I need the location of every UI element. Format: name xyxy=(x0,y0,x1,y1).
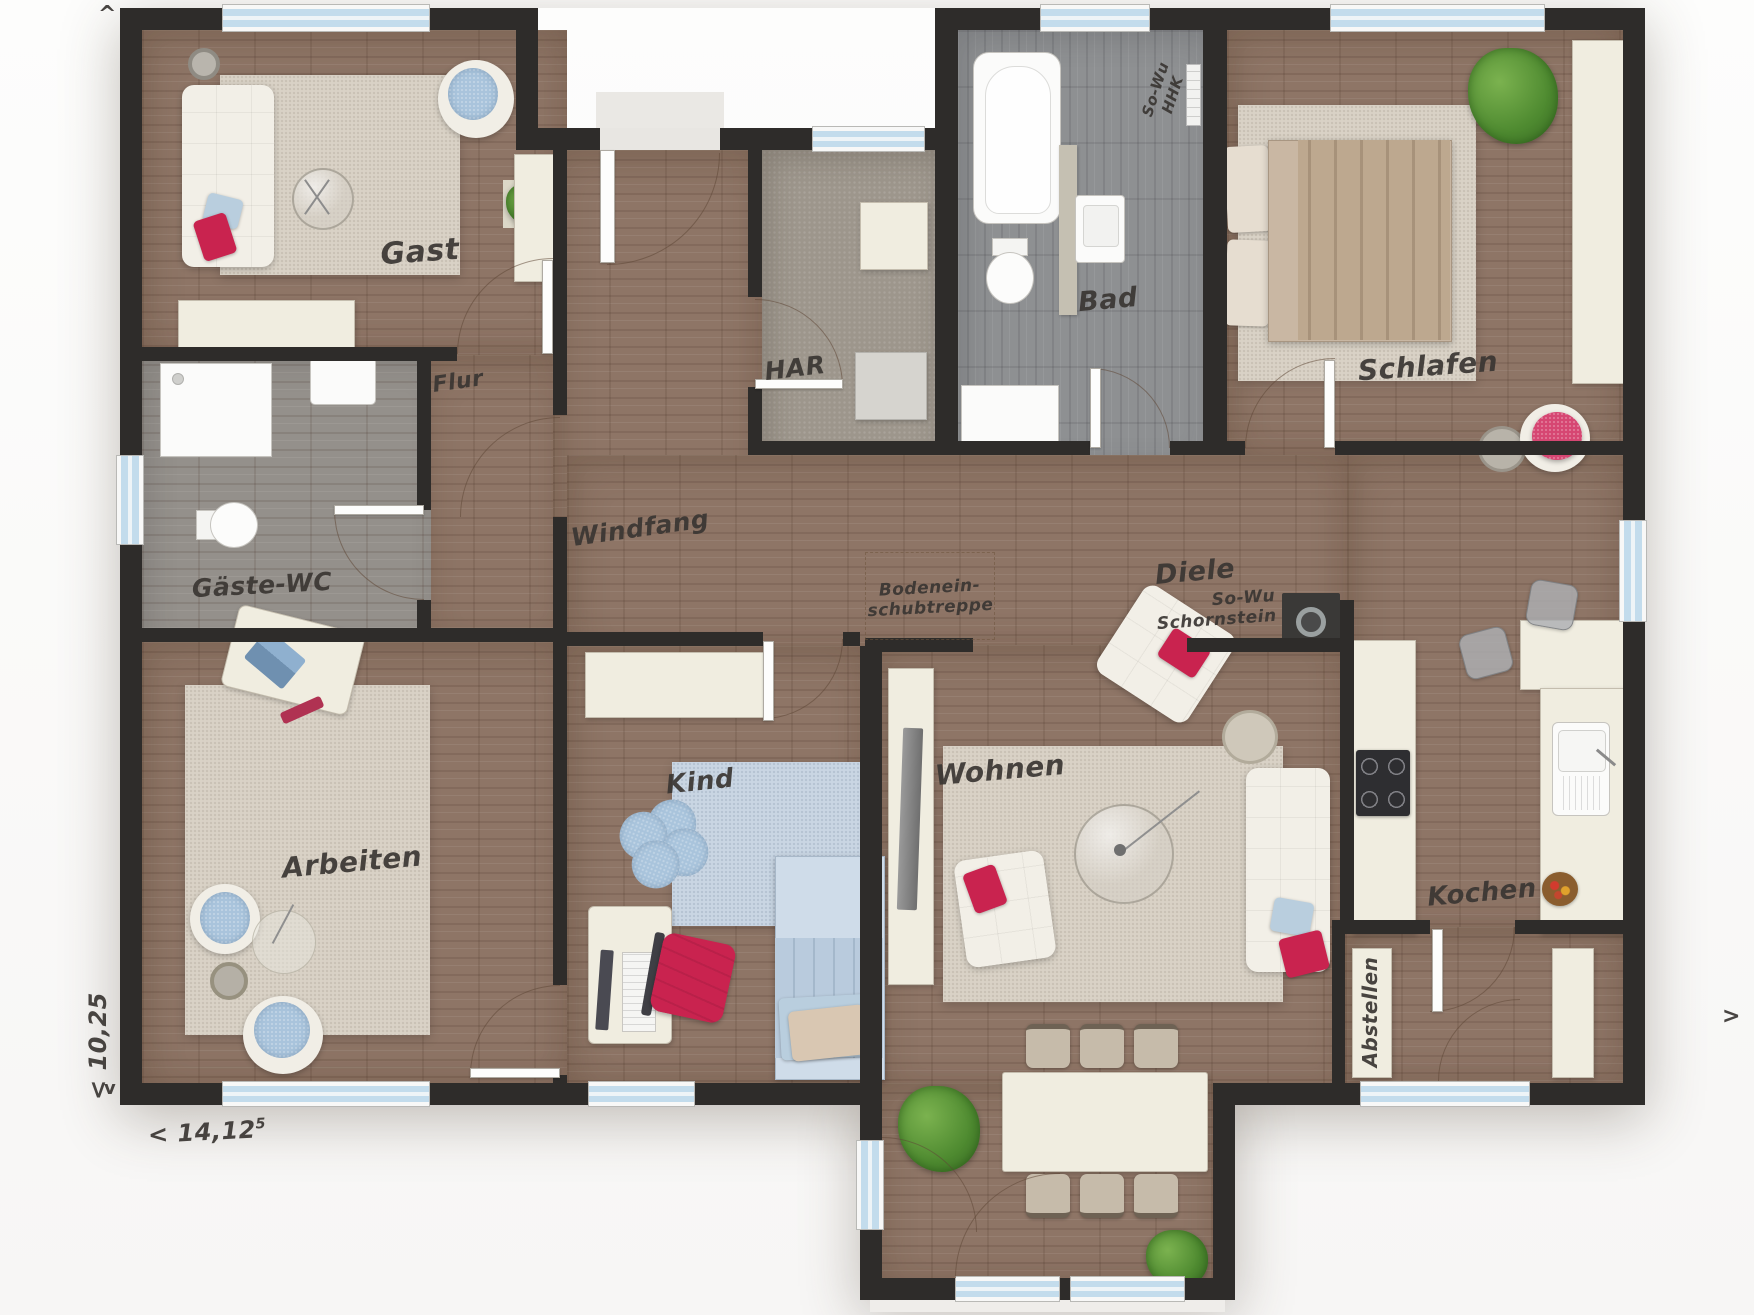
dining-chair-1 xyxy=(1026,1024,1070,1068)
schlafen-wardrobe xyxy=(1572,40,1625,384)
schlafen-blanket xyxy=(1298,140,1450,340)
wall xyxy=(1515,920,1623,934)
wall xyxy=(860,646,882,1083)
arbeiten-armchair-1-cushion xyxy=(200,892,250,944)
entry-landing xyxy=(596,92,724,132)
dimension-arrow-right: > xyxy=(1722,1004,1741,1029)
kochen-bar-counter xyxy=(1520,620,1625,690)
kochen-bar-chair-2 xyxy=(1524,578,1579,632)
wall xyxy=(417,355,431,510)
diele-side-table xyxy=(1222,710,1278,764)
gwc-door-leaf xyxy=(334,505,424,515)
window xyxy=(588,1081,695,1107)
room-label-gast: Gast xyxy=(379,232,460,272)
kind-wardrobe xyxy=(585,652,769,718)
wall xyxy=(1187,638,1340,652)
arbeiten-armchair-2-cushion xyxy=(254,1002,310,1058)
gwc-sink xyxy=(310,357,376,405)
dining-chair-5 xyxy=(1080,1174,1124,1218)
har-appliance-2 xyxy=(855,352,927,420)
gast-door-leaf xyxy=(542,260,553,354)
gast-coffee-table xyxy=(292,168,354,230)
window xyxy=(1040,4,1150,32)
wall xyxy=(958,441,1090,455)
chimney-annotation: So-Wu Schornstein xyxy=(1155,586,1277,634)
window xyxy=(955,1276,1060,1302)
wall xyxy=(553,517,567,985)
dimension-width-superscript: 5 xyxy=(255,1116,266,1133)
arbeiten-door-leaf xyxy=(470,1068,560,1078)
schlafen-pillow-1 xyxy=(1224,145,1272,233)
room-label-abstellen: Abstellen xyxy=(1358,957,1382,1068)
abstellen-shelf-right xyxy=(1552,948,1594,1078)
bad-shower xyxy=(961,385,1059,443)
arbeiten-side-table xyxy=(210,962,248,1000)
wall xyxy=(120,8,142,1105)
wall xyxy=(142,628,567,642)
bad-toilet xyxy=(986,252,1034,304)
dining-chair-6 xyxy=(1134,1174,1178,1218)
wall xyxy=(748,441,935,455)
entry-door-threshold xyxy=(600,128,720,150)
abstellen-door-leaf xyxy=(1432,929,1443,1012)
wohnen-sofa-blue-pillow xyxy=(1269,897,1314,937)
kind-bed-pillow xyxy=(788,1004,869,1062)
dimension-height: < 10,25 xyxy=(84,960,112,1100)
gwc-toilet xyxy=(210,502,258,548)
wall xyxy=(1227,441,1245,455)
wall xyxy=(748,150,762,297)
gwc-shower-drain xyxy=(172,373,184,385)
dimension-width-value: < 14,12 xyxy=(147,1115,256,1149)
bad-sink-basin xyxy=(1083,205,1119,247)
wall xyxy=(1203,30,1227,441)
har-appliance-1 xyxy=(860,202,928,270)
wall xyxy=(1345,920,1430,934)
wall xyxy=(142,347,457,361)
wall xyxy=(1213,1083,1235,1300)
wall xyxy=(567,632,763,646)
gast-sideboard xyxy=(178,300,355,349)
wall xyxy=(935,150,958,455)
dining-chair-2 xyxy=(1080,1024,1124,1068)
loft-ladder-annotation: Bodenein- schubtreppe xyxy=(866,575,994,622)
dining-chair-3 xyxy=(1134,1024,1178,1068)
window xyxy=(1070,1276,1185,1302)
floor-plan: Gast Flur Gäste-WC Arbeiten Windfang HAR… xyxy=(0,0,1754,1315)
chimney-flue xyxy=(1296,607,1326,637)
bad-bathtub-basin xyxy=(985,66,1051,214)
schlafen-door-leaf xyxy=(1324,360,1335,448)
dining-table xyxy=(1002,1072,1208,1172)
wall xyxy=(843,632,860,646)
kochen-fruit-bowl xyxy=(1542,872,1578,906)
dimension-width: < 14,125 xyxy=(147,1115,267,1149)
window xyxy=(222,1081,430,1107)
wall xyxy=(1340,600,1354,920)
wohnen-lamp-head xyxy=(1114,844,1126,856)
kochen-sink-drainer xyxy=(1558,776,1604,810)
gast-armchair-cushion xyxy=(448,68,498,120)
window xyxy=(812,126,925,152)
terrace-door-window xyxy=(856,1140,884,1230)
wall xyxy=(1170,441,1227,455)
wohnen-armchair-1 xyxy=(953,849,1057,968)
room-label-bad: Bad xyxy=(1077,282,1139,318)
kochen-cooktop xyxy=(1356,750,1410,816)
wall xyxy=(553,150,567,415)
wall xyxy=(1332,920,1345,1083)
window xyxy=(1360,1081,1530,1107)
kind-door-leaf xyxy=(763,641,774,721)
window xyxy=(1619,520,1647,622)
wall xyxy=(935,8,958,150)
wall xyxy=(516,8,538,150)
bad-door-leaf xyxy=(1090,368,1101,448)
schlafen-pillow-2 xyxy=(1225,239,1272,326)
window xyxy=(1330,4,1545,32)
window xyxy=(222,4,430,32)
dimension-arrow-up: ^ xyxy=(98,2,117,27)
window xyxy=(116,455,144,545)
gast-ceiling-lamp xyxy=(188,48,220,80)
wall xyxy=(1335,441,1623,455)
